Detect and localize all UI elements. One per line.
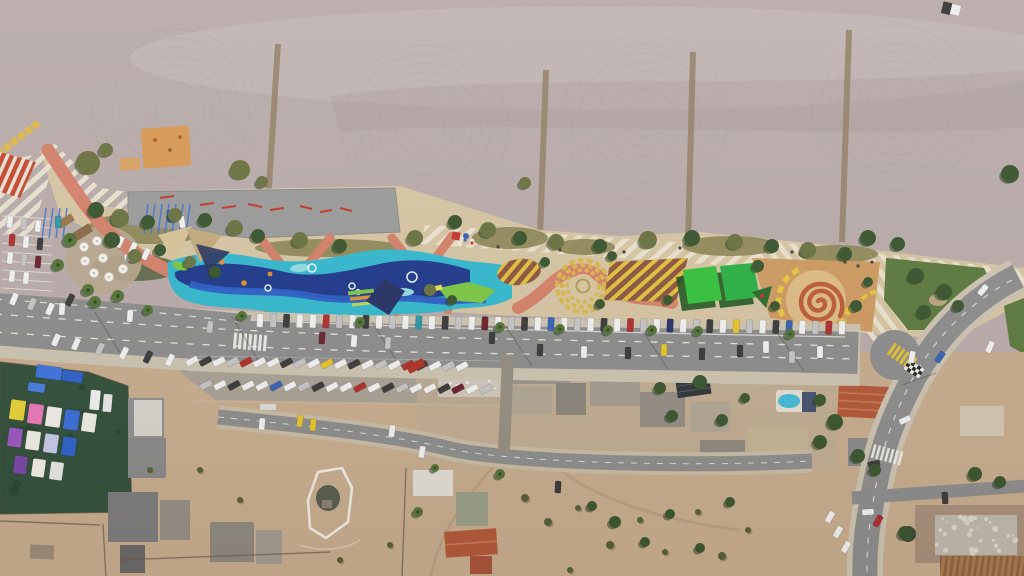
photo-vignette [0, 0, 1024, 576]
aerial-photo-stage [0, 0, 1024, 576]
aerial-photo [0, 0, 1024, 576]
